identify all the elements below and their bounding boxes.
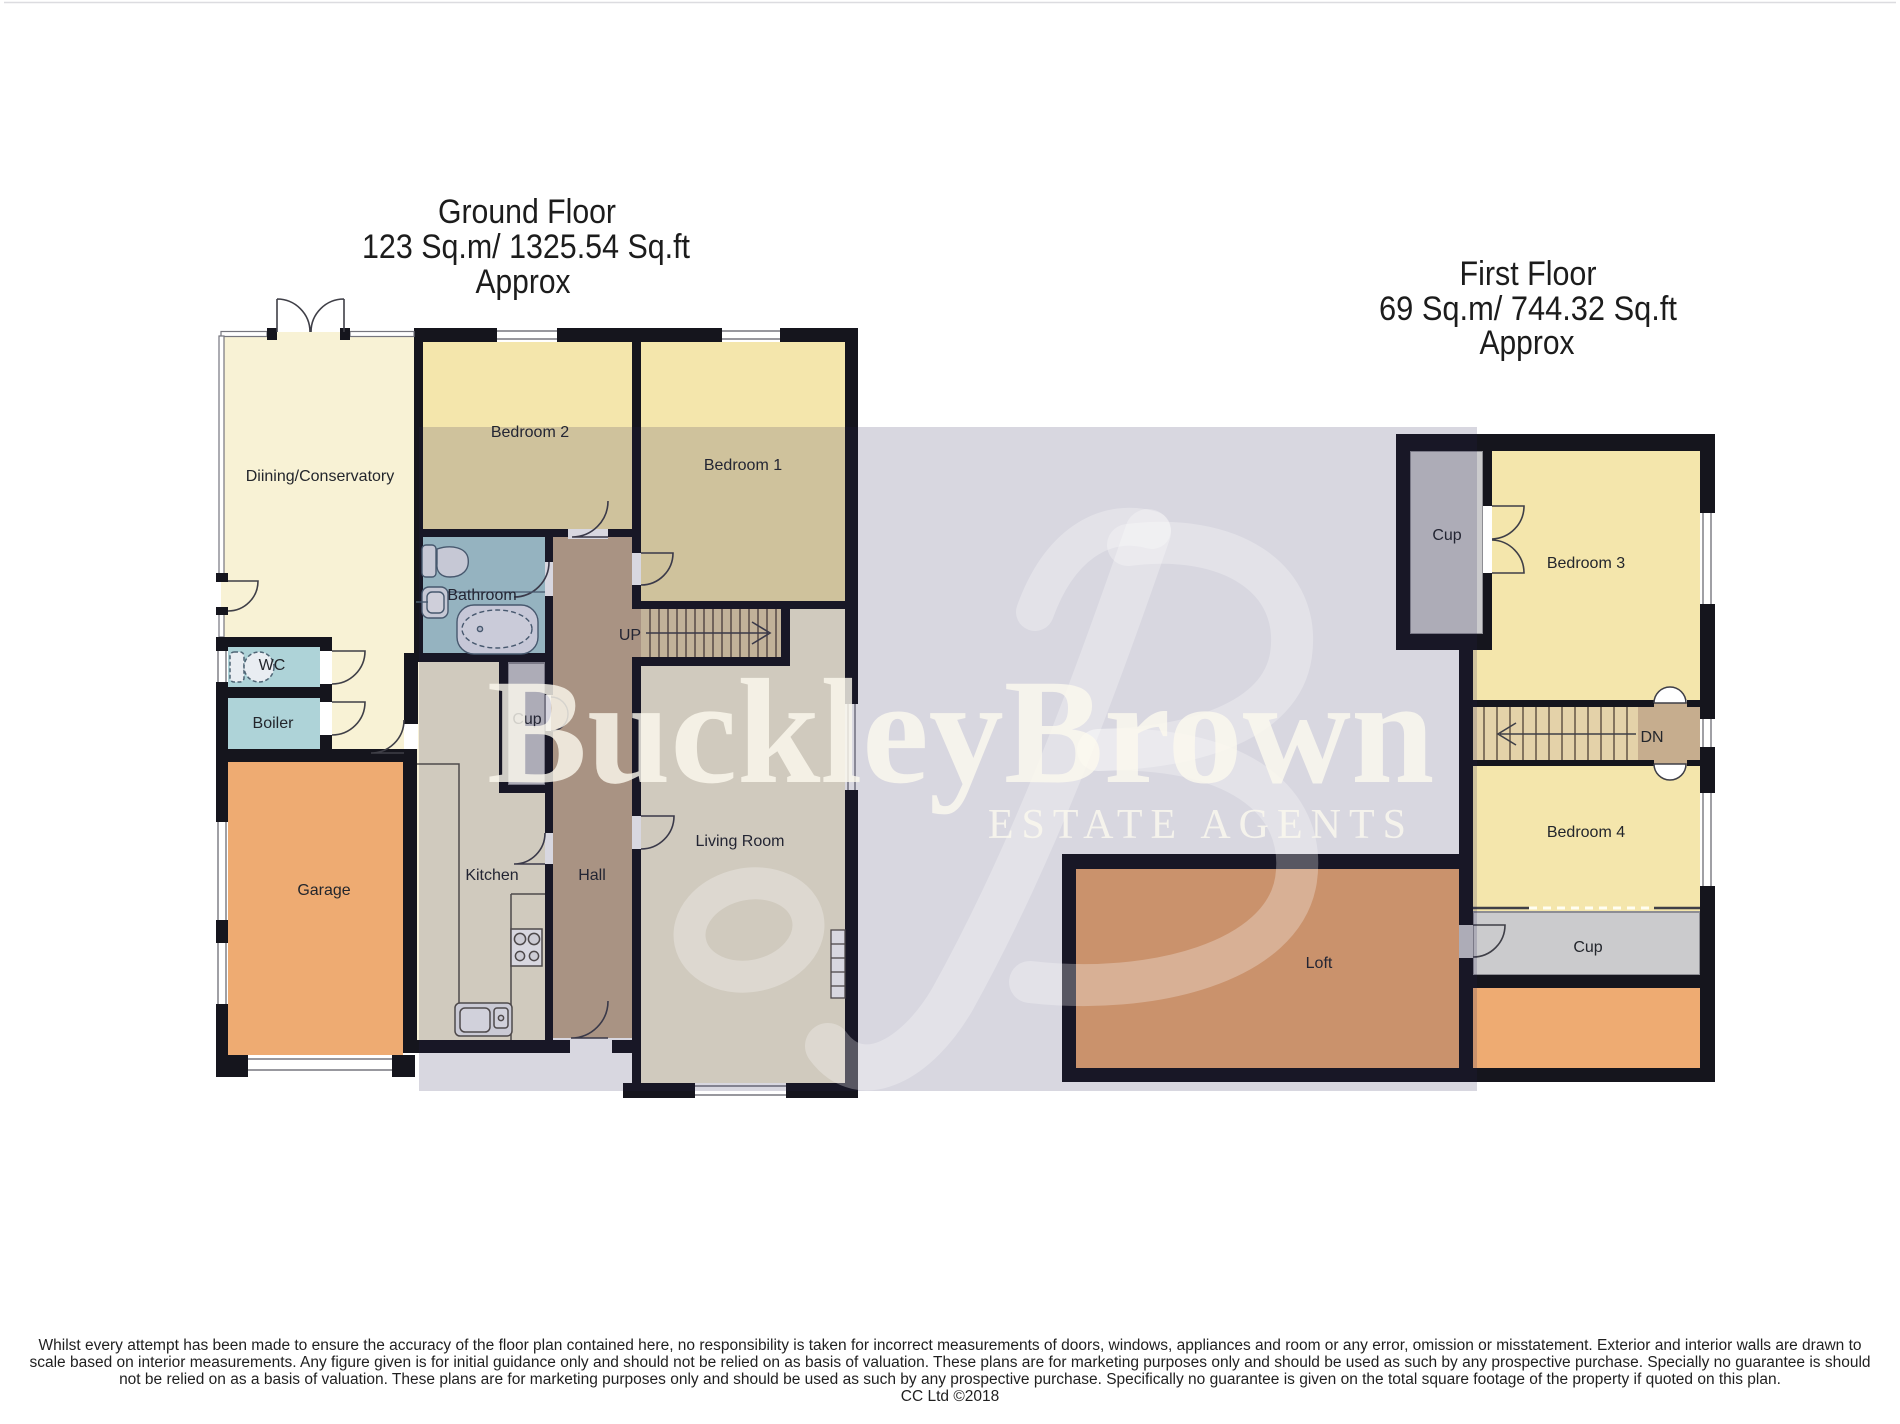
- svg-text:WC: WC: [259, 657, 286, 674]
- svg-text:Boiler: Boiler: [253, 715, 295, 732]
- svg-text:Garage: Garage: [297, 882, 350, 899]
- svg-text:Bedroom 4: Bedroom 4: [1547, 824, 1625, 841]
- svg-text:Approx: Approx: [1480, 324, 1575, 362]
- svg-text:scale based on interior measur: scale based on interior measurements. An…: [29, 1354, 1870, 1371]
- svg-text:Cup: Cup: [1573, 939, 1602, 956]
- svg-text:First Floor: First Floor: [1460, 255, 1597, 293]
- svg-text:Whilst every attempt has been: Whilst every attempt has been made to en…: [39, 1337, 1862, 1354]
- svg-text:Approx: Approx: [476, 263, 571, 301]
- svg-text:BuckleyBrown: BuckleyBrown: [487, 649, 1434, 815]
- svg-text:Ground Floor: Ground Floor: [438, 193, 616, 231]
- svg-text:Bedroom 3: Bedroom 3: [1547, 555, 1625, 572]
- svg-text:not be relied on as a basis of: not be relied on as a basis of valuation…: [119, 1371, 1781, 1388]
- svg-text:DN: DN: [1640, 729, 1663, 746]
- svg-text:69 Sq.m/ 744.32 Sq.ft: 69 Sq.m/ 744.32 Sq.ft: [1379, 290, 1677, 328]
- svg-text:CC Ltd ©2018: CC Ltd ©2018: [901, 1388, 999, 1405]
- svg-text:123 Sq.m/ 1325.54 Sq.ft: 123 Sq.m/ 1325.54 Sq.ft: [362, 228, 690, 266]
- svg-text:ESTATE AGENTS: ESTATE AGENTS: [988, 802, 1414, 848]
- svg-text:Diining/Conservatory: Diining/Conservatory: [246, 468, 395, 485]
